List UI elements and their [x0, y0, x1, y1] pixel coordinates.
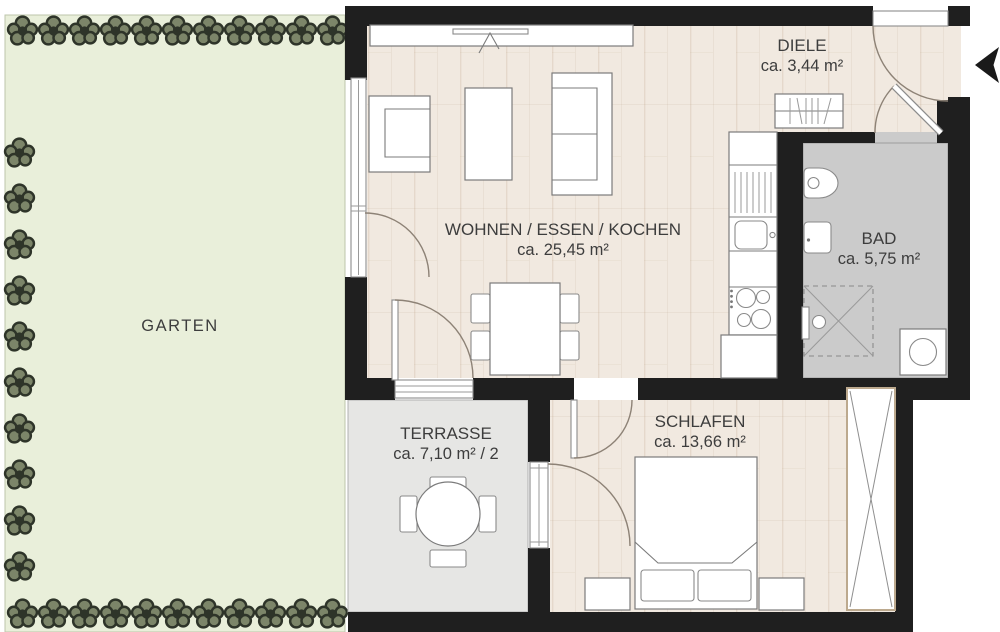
entrance-arrow-icon: [975, 47, 999, 83]
coffee-table: [465, 88, 512, 180]
wardrobe: [847, 388, 895, 610]
washing-machine-icon: [900, 329, 946, 375]
room-name: DIELE: [761, 35, 844, 56]
armchair: [369, 96, 430, 172]
room-label-schlafen: SCHLAFEN ca. 13,66 m²: [654, 411, 746, 453]
room-area: ca. 13,66 m²: [654, 432, 746, 453]
room-label-wohnen: WOHNEN / ESSEN / KOCHEN ca. 25,45 m²: [445, 219, 681, 261]
nightstand-left: [585, 578, 630, 610]
room-area: ca. 7,10 m² / 2: [393, 444, 498, 465]
nightstand-right: [759, 578, 804, 610]
bed: [635, 457, 757, 609]
room-name: SCHLAFEN: [654, 411, 746, 432]
room-label-diele: DIELE ca. 3,44 m²: [761, 35, 844, 77]
living-room-window: [351, 78, 366, 277]
kitchen-counter: [721, 132, 777, 378]
room-name: BAD: [838, 228, 921, 249]
toilet-icon: [804, 168, 838, 198]
coat-rack-icon: [775, 94, 843, 128]
bedroom-terrace-window: [530, 462, 548, 548]
room-label-terrasse: TERRASSE ca. 7,10 m² / 2: [393, 423, 498, 465]
room-label-bad: BAD ca. 5,75 m²: [838, 228, 921, 270]
room-area: ca. 5,75 m²: [838, 249, 921, 270]
room-name: GARTEN: [141, 316, 218, 337]
room-name: TERRASSE: [393, 423, 498, 444]
room-label-garten: GARTEN: [141, 316, 218, 337]
sofa: [552, 73, 612, 195]
room-area: ca. 25,45 m²: [445, 240, 681, 261]
sideboard: [370, 25, 633, 46]
room-name: WOHNEN / ESSEN / KOCHEN: [445, 219, 681, 240]
room-area: ca. 3,44 m²: [761, 56, 844, 77]
washbasin-icon: [804, 222, 831, 253]
floor-plan: GARTEN DIELE ca. 3,44 m² WOHNEN / ESSEN …: [0, 0, 1000, 632]
